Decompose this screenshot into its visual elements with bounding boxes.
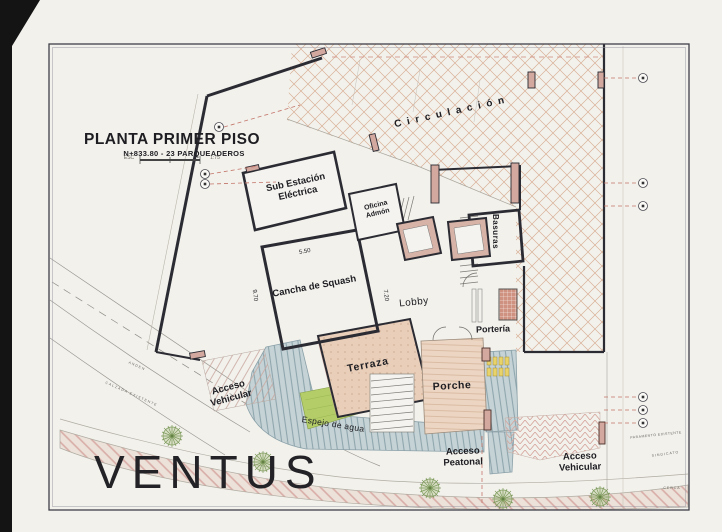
room-label-acceso-peatonal: Acceso Peatonal bbox=[424, 446, 503, 471]
scan-edge bbox=[0, 0, 40, 532]
page-title: PLANTA PRIMER PISO bbox=[84, 131, 284, 149]
project-name: VENTUS bbox=[94, 446, 434, 499]
floor-plan-scan: PLANTA PRIMER PISO N+833.80 - 23 PARQUEA… bbox=[0, 0, 722, 532]
scale-value: 1:75 bbox=[202, 156, 228, 162]
room-label-basuras: Basuras bbox=[491, 214, 500, 249]
elevator-shafts bbox=[397, 217, 490, 260]
scale-prefix: ESC bbox=[120, 156, 138, 162]
title-subtitle: N+833.80 - 23 PARQUEADEROS bbox=[84, 150, 284, 159]
margin-label-lower: CERCA bbox=[652, 486, 692, 490]
tile-bath bbox=[499, 289, 517, 320]
room-label-acceso-vehicular-der: Acceso Vehicular bbox=[538, 451, 623, 476]
porter-desk bbox=[472, 289, 482, 322]
